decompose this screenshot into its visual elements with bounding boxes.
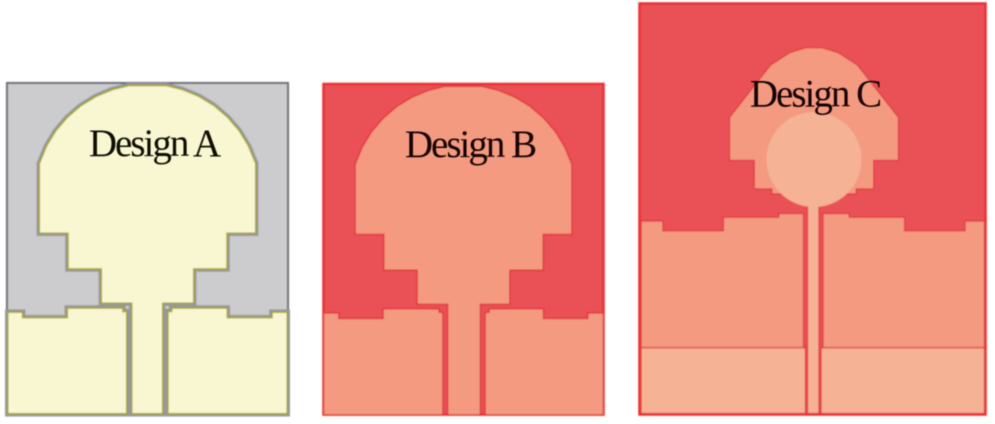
svg-text:Design C: Design C <box>750 73 880 116</box>
svg-text:Design A: Design A <box>89 122 221 165</box>
svg-text:Design B: Design B <box>405 123 536 166</box>
